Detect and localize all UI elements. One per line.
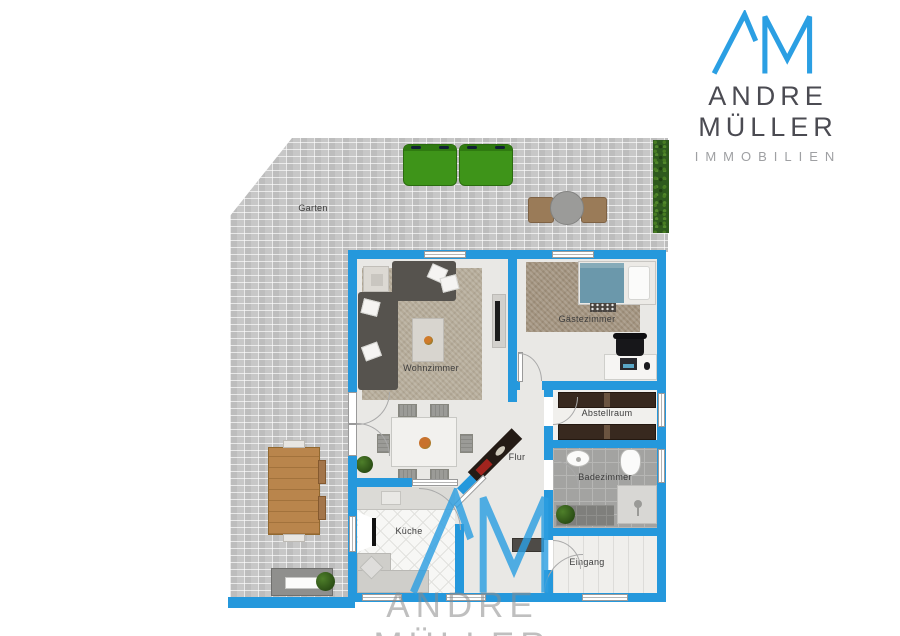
- dining-chair: [430, 404, 449, 417]
- green-bin-left: [403, 144, 457, 186]
- kitchen-sink: [381, 491, 401, 505]
- wall-living-guest: [508, 250, 517, 390]
- fruit-bowl: [419, 437, 431, 449]
- office-chair-back: [613, 333, 647, 339]
- room-label-wohnzimmer: Wohnzimmer: [403, 363, 459, 373]
- picnic-chair-right: [318, 460, 326, 484]
- dining-chair: [460, 434, 473, 453]
- shower: [617, 485, 657, 524]
- picnic-bench-top: [283, 440, 305, 448]
- picnic-chair-right2: [318, 496, 326, 520]
- watermark-am-logo: [402, 488, 584, 596]
- bathroom-sink: [566, 450, 590, 467]
- kitchen-wall-unit-front: [372, 518, 376, 546]
- bin-handle: [467, 146, 477, 149]
- coffee-table: [412, 318, 444, 362]
- office-chair: [616, 336, 644, 356]
- side-table-top: [371, 274, 383, 286]
- desk-mouse: [644, 362, 650, 370]
- bed-foot-runner: [590, 303, 616, 312]
- company-name: ANDRE MÜLLER: [640, 81, 896, 143]
- terrace-door-leaf-bottom: [348, 424, 357, 456]
- window-kitchen-left: [349, 516, 356, 552]
- wall-storage-bath: [553, 440, 666, 448]
- wall-living-hall-stub: [508, 390, 517, 402]
- window-bath-right: [658, 449, 665, 483]
- picnic-table: [268, 447, 320, 535]
- bed-pillow: [628, 266, 650, 300]
- laptop: [620, 358, 637, 370]
- wall-top: [348, 250, 666, 259]
- dining-table: [391, 417, 457, 467]
- bed-blanket: [580, 263, 624, 303]
- wall-kitchen-dining: [348, 478, 412, 487]
- window-dining-pass: [412, 479, 458, 486]
- watermark-company: ANDRE MÜLLER: [310, 586, 615, 636]
- bin-handle: [439, 146, 449, 149]
- shower-head-arm: [637, 507, 639, 516]
- window-living-top: [424, 251, 466, 258]
- sideboard-tray: [494, 445, 507, 458]
- indoor-plant: [356, 456, 373, 473]
- window-guest-top: [552, 251, 594, 258]
- company-logo-mark: [706, 10, 838, 76]
- room-label-badezimmer: Badezimmer: [578, 472, 632, 482]
- side-table: [363, 266, 389, 292]
- dining-chair: [398, 404, 417, 417]
- wall-guest-bottom-a: [508, 381, 520, 390]
- floor-plan-page: Garten Wohnzimmer: [0, 0, 900, 636]
- garden-table: [550, 191, 584, 225]
- watermark-text-block: ANDRE MÜLLER IMMOBILIEN: [310, 586, 615, 636]
- company-logo: ANDRE MÜLLER IMMOBILIEN: [640, 10, 896, 164]
- storage-door-gap: [544, 397, 553, 426]
- wall-guest-bottom-b: [542, 381, 666, 390]
- flower-decoration: [424, 336, 433, 345]
- picnic-bench-bottom: [283, 534, 305, 542]
- sink-drain: [576, 457, 581, 462]
- room-label-abstellraum: Abstellraum: [582, 408, 633, 418]
- room-label-garten: Garten: [298, 203, 327, 213]
- tv-icon: [495, 301, 500, 341]
- company-division: IMMOBILIEN: [640, 149, 896, 164]
- laptop-screen: [623, 364, 634, 368]
- bin-handle: [411, 146, 421, 149]
- bin-handle: [495, 146, 505, 149]
- terrace-door-leaf-top: [348, 392, 357, 424]
- bath-door-gap: [544, 460, 553, 490]
- garden-chair-right: [581, 197, 607, 223]
- room-label-flur: Flur: [509, 452, 526, 462]
- room-label-gaestezimmer: Gästezimmer: [559, 314, 616, 324]
- window-storage-right: [658, 393, 665, 427]
- green-bin-right: [459, 144, 513, 186]
- storage-shelf-bottom: [558, 424, 656, 440]
